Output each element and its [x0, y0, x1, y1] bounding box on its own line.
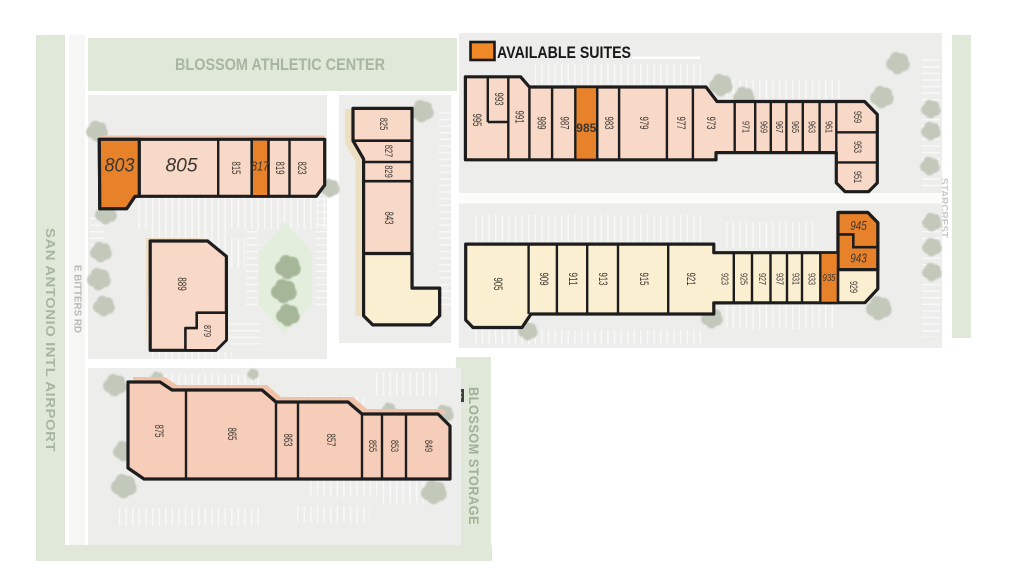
svg-text:973: 973	[704, 117, 716, 130]
svg-text:915: 915	[637, 273, 649, 286]
svg-text:987: 987	[558, 117, 570, 130]
svg-text:BLOSSOM STORAGE: BLOSSOM STORAGE	[466, 387, 482, 525]
svg-text:951: 951	[851, 171, 863, 183]
svg-text:925: 925	[738, 273, 749, 285]
svg-text:945: 945	[850, 219, 867, 233]
svg-text:909: 909	[537, 273, 549, 286]
svg-text:931: 931	[790, 273, 801, 285]
svg-text:967: 967	[773, 121, 784, 133]
svg-text:SAN ANTONIO INTL AIRPORT: SAN ANTONIO INTL AIRPORT	[43, 228, 58, 452]
svg-text:805: 805	[166, 155, 198, 177]
svg-text:963: 963	[806, 121, 817, 133]
svg-text:961: 961	[823, 121, 834, 133]
svg-text:E BITTERS RD: E BITTERS RD	[72, 265, 83, 333]
svg-text:879: 879	[201, 325, 213, 337]
svg-text:943: 943	[850, 252, 867, 266]
svg-text:983: 983	[602, 117, 614, 130]
svg-text:849: 849	[422, 440, 434, 452]
svg-text:865: 865	[225, 428, 237, 441]
svg-text:969: 969	[758, 121, 769, 133]
svg-text:BLOSSOM ATHLETIC CENTER: BLOSSOM ATHLETIC CENTER	[175, 56, 385, 74]
svg-text:857: 857	[324, 434, 336, 447]
svg-text:979: 979	[637, 117, 649, 130]
svg-text:991: 991	[513, 111, 525, 124]
svg-text:AVAILABLE SUITES: AVAILABLE SUITES	[497, 44, 631, 62]
svg-text:935: 935	[823, 273, 836, 284]
svg-text:875: 875	[152, 425, 164, 438]
svg-text:825: 825	[377, 118, 389, 131]
svg-text:863: 863	[281, 434, 293, 447]
svg-text:829: 829	[382, 165, 394, 178]
svg-text:855: 855	[366, 440, 378, 452]
svg-text:815: 815	[229, 162, 241, 175]
svg-text:823: 823	[295, 162, 307, 175]
svg-text:817: 817	[251, 159, 270, 174]
svg-text:933: 933	[806, 273, 817, 285]
svg-text:971: 971	[740, 121, 751, 133]
svg-text:921: 921	[684, 273, 696, 286]
svg-text:985: 985	[576, 121, 596, 135]
svg-text:923: 923	[719, 273, 730, 285]
svg-text:993: 993	[492, 93, 504, 106]
svg-text:927: 927	[756, 273, 767, 285]
svg-text:965: 965	[789, 121, 800, 133]
svg-text:905: 905	[491, 278, 503, 291]
svg-text:989: 989	[535, 117, 547, 130]
svg-text:929: 929	[847, 281, 859, 293]
svg-text:889: 889	[175, 277, 189, 291]
svg-text:803: 803	[105, 155, 135, 177]
svg-text:959: 959	[851, 111, 863, 123]
svg-text:853: 853	[388, 440, 400, 452]
svg-text:995: 995	[470, 114, 482, 127]
svg-text:977: 977	[674, 117, 686, 130]
svg-text:827: 827	[382, 145, 394, 158]
svg-text:843: 843	[382, 212, 394, 225]
svg-text:913: 913	[596, 273, 608, 286]
svg-text:953: 953	[851, 141, 863, 153]
svg-text:819: 819	[273, 162, 285, 175]
svg-text:911: 911	[566, 273, 578, 286]
svg-text:937: 937	[774, 273, 785, 285]
